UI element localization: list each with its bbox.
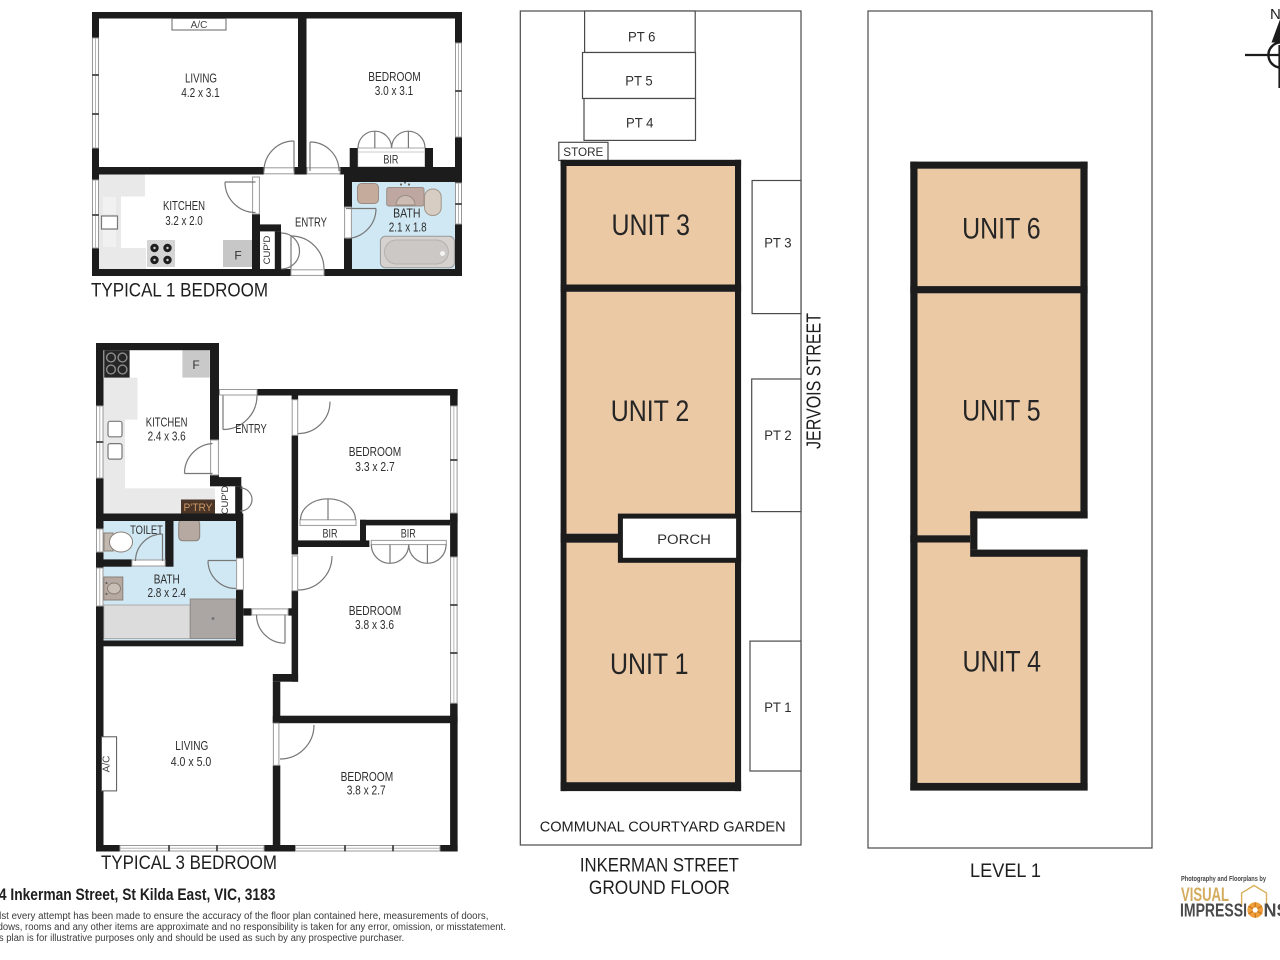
svg-text:PT 6: PT 6 bbox=[628, 29, 656, 45]
svg-text:UNIT 5: UNIT 5 bbox=[962, 395, 1041, 428]
svg-text:PT 1: PT 1 bbox=[764, 699, 792, 715]
svg-text:LIVING: LIVING bbox=[175, 739, 208, 753]
svg-text:3.3 x 2.7: 3.3 x 2.7 bbox=[355, 460, 394, 474]
svg-text:BATH: BATH bbox=[393, 207, 420, 221]
svg-text:This plan is for illustrative: This plan is for illustrative purposes o… bbox=[0, 933, 404, 944]
svg-text:2.1 x 1.8: 2.1 x 1.8 bbox=[389, 221, 427, 235]
svg-text:Whilst every attempt has been: Whilst every attempt has been made to en… bbox=[0, 911, 488, 922]
svg-text:BEDROOM: BEDROOM bbox=[341, 770, 394, 784]
svg-text:BEDROOM: BEDROOM bbox=[349, 445, 402, 459]
svg-text:F: F bbox=[234, 249, 241, 263]
svg-text:PT 5: PT 5 bbox=[625, 73, 653, 89]
svg-text:BEDROOM: BEDROOM bbox=[349, 604, 402, 618]
svg-text:CUP'D: CUP'D bbox=[220, 485, 231, 514]
svg-text:PT 4: PT 4 bbox=[626, 115, 654, 131]
svg-text:KITCHEN: KITCHEN bbox=[163, 199, 205, 213]
svg-text:TOILET: TOILET bbox=[130, 525, 163, 537]
svg-text:JERVOIS STREET: JERVOIS STREET bbox=[804, 313, 826, 449]
svg-text:NS: NS bbox=[1264, 901, 1280, 921]
svg-text:P'TRY: P'TRY bbox=[184, 502, 214, 514]
svg-text:2.8 x 2.4: 2.8 x 2.4 bbox=[147, 586, 186, 600]
svg-text:2/4 Inkerman Street, St Kilda: 2/4 Inkerman Street, St Kilda East, VIC,… bbox=[0, 886, 275, 904]
svg-text:3.8 x 3.6: 3.8 x 3.6 bbox=[355, 618, 394, 632]
svg-text:CUP'D: CUP'D bbox=[262, 235, 273, 264]
svg-text:STORE: STORE bbox=[563, 147, 603, 159]
svg-text:3.2 x 2.0: 3.2 x 2.0 bbox=[165, 214, 203, 228]
svg-text:UNIT 6: UNIT 6 bbox=[962, 213, 1041, 246]
svg-text:BIR: BIR bbox=[401, 529, 416, 541]
svg-text:N: N bbox=[1270, 6, 1280, 23]
svg-text:PORCH: PORCH bbox=[657, 532, 711, 547]
svg-text:F: F bbox=[192, 358, 199, 372]
svg-text:windows, rooms and any other i: windows, rooms and any other items are a… bbox=[0, 922, 506, 933]
svg-text:TYPICAL 3 BEDROOM: TYPICAL 3 BEDROOM bbox=[101, 853, 277, 874]
svg-text:4.2 x 3.1: 4.2 x 3.1 bbox=[181, 86, 220, 100]
svg-text:Photography and Floorplans by: Photography and Floorplans by bbox=[1181, 874, 1267, 883]
svg-text:BIR: BIR bbox=[383, 154, 398, 166]
svg-text:COMMUNAL COURTYARD GARDEN: COMMUNAL COURTYARD GARDEN bbox=[540, 819, 786, 836]
svg-text:BIR: BIR bbox=[323, 529, 338, 541]
svg-text:IMPRESSI: IMPRESSI bbox=[1180, 901, 1247, 921]
svg-text:PT 2: PT 2 bbox=[764, 427, 792, 443]
svg-text:KITCHEN: KITCHEN bbox=[146, 416, 188, 430]
svg-text:UNIT 2: UNIT 2 bbox=[611, 395, 690, 428]
svg-text:PT 3: PT 3 bbox=[764, 235, 792, 251]
svg-text:BATH: BATH bbox=[154, 572, 180, 586]
svg-text:3.0 x 3.1: 3.0 x 3.1 bbox=[375, 84, 414, 98]
svg-text:ENTRY: ENTRY bbox=[295, 216, 328, 230]
svg-text:2.4 x 3.6: 2.4 x 3.6 bbox=[148, 430, 186, 444]
svg-text:A/C: A/C bbox=[191, 20, 208, 31]
svg-text:BEDROOM: BEDROOM bbox=[368, 70, 421, 84]
svg-text:UNIT 4: UNIT 4 bbox=[962, 646, 1041, 679]
svg-text:GROUND FLOOR: GROUND FLOOR bbox=[589, 877, 730, 899]
svg-text:3.8 x 2.7: 3.8 x 2.7 bbox=[347, 784, 386, 798]
svg-text:4.0 x 5.0: 4.0 x 5.0 bbox=[171, 755, 212, 769]
svg-text:ENTRY: ENTRY bbox=[235, 422, 267, 436]
svg-text:TYPICAL 1 BEDROOM: TYPICAL 1 BEDROOM bbox=[91, 281, 268, 302]
svg-text:INKERMAN STREET: INKERMAN STREET bbox=[580, 855, 739, 877]
svg-text:LIVING: LIVING bbox=[185, 72, 217, 86]
svg-text:UNIT 1: UNIT 1 bbox=[610, 648, 689, 681]
svg-text:UNIT 3: UNIT 3 bbox=[612, 209, 691, 242]
svg-text:LEVEL 1: LEVEL 1 bbox=[970, 860, 1041, 882]
svg-text:A/C: A/C bbox=[102, 756, 113, 773]
